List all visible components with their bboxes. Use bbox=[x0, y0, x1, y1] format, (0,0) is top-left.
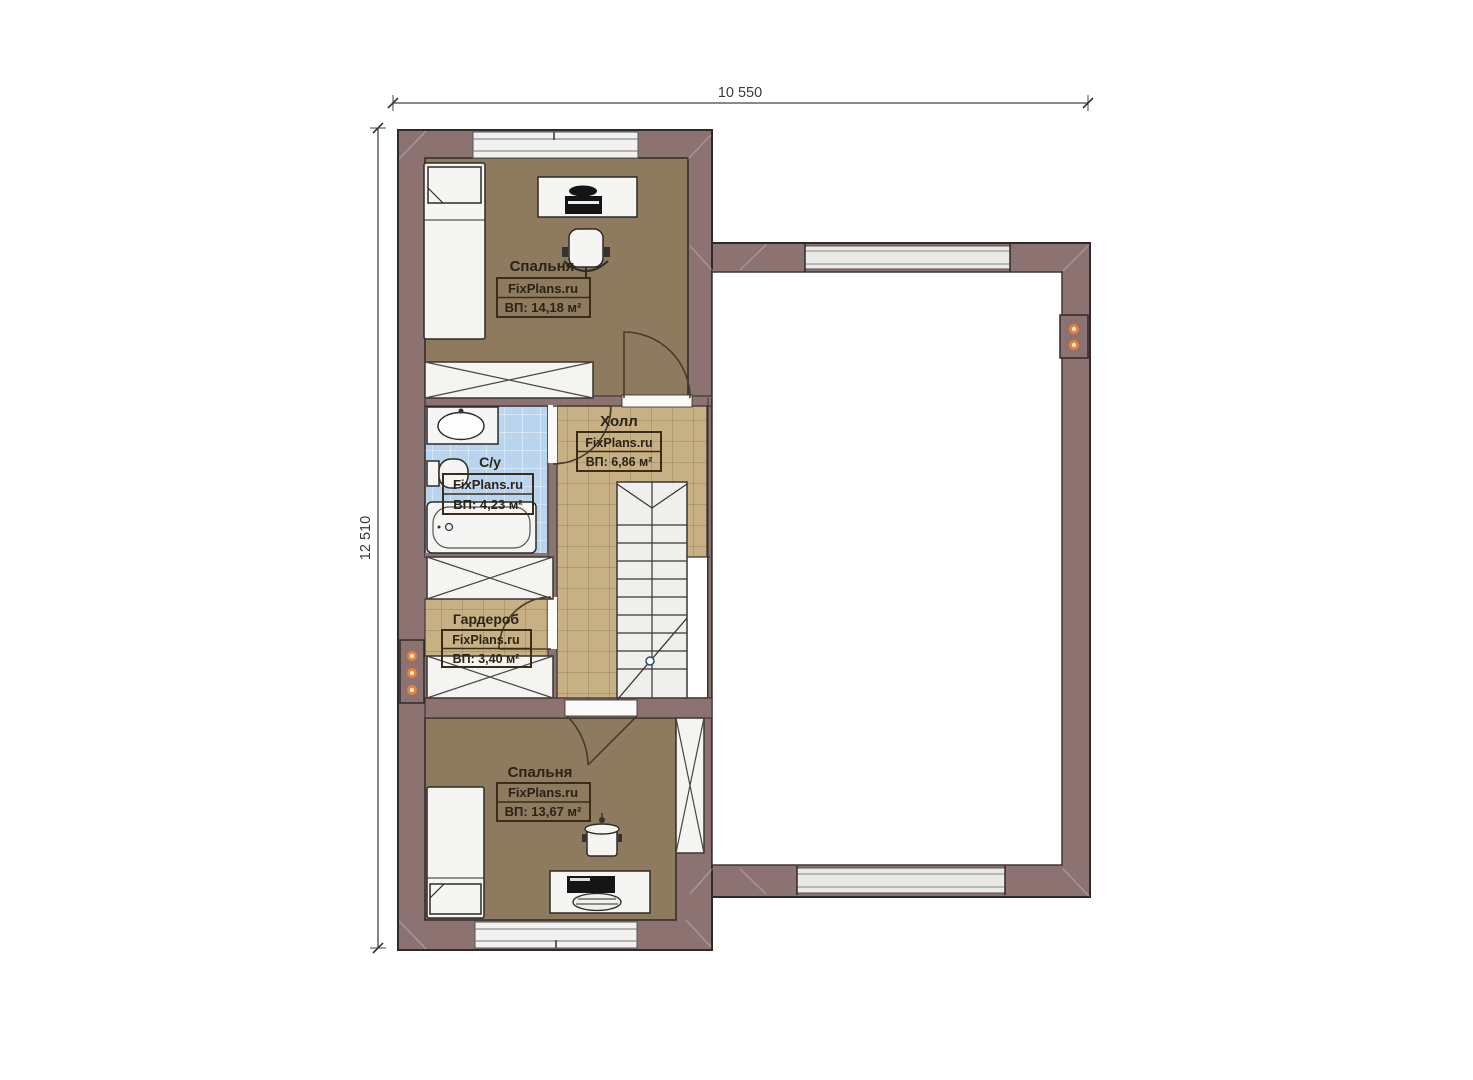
door-opening-wardrobe bbox=[548, 597, 557, 649]
desk-top bbox=[538, 177, 637, 217]
stair-break-marker bbox=[646, 657, 654, 665]
dimension-top: 10 550 bbox=[388, 85, 1093, 111]
floor-plan: 10 550 12 510 bbox=[0, 0, 1473, 1080]
window-bedroom-top bbox=[473, 132, 638, 158]
room-name-bedroom-top: Спальня bbox=[510, 258, 575, 275]
door-opening-bedroom-top bbox=[622, 395, 692, 407]
open-room-floor bbox=[712, 272, 1062, 865]
window-open-room-top bbox=[805, 243, 1010, 272]
room-name-bathroom: С/у bbox=[479, 454, 501, 470]
room-name-hall: Холл bbox=[600, 413, 638, 430]
door-opening-bathroom bbox=[548, 405, 557, 463]
label-wardrobe: Гардероб FixPlans.ru ВП: 3,40 м² bbox=[442, 611, 531, 667]
room-area-bedroom-bottom: ВП: 13,67 м² bbox=[505, 804, 582, 819]
window-bedroom-bottom bbox=[475, 922, 637, 948]
door-opening-bedroom-bottom bbox=[565, 700, 637, 716]
window-open-room-bottom bbox=[797, 866, 1005, 895]
watermark: FixPlans.ru bbox=[508, 785, 578, 800]
dimension-left: 12 510 bbox=[358, 123, 386, 953]
vent-block-right bbox=[1060, 315, 1088, 358]
room-area-bedroom-top: ВП: 14,18 м² bbox=[505, 300, 582, 315]
room-name-bedroom-bottom: Спальня bbox=[508, 764, 573, 781]
sink bbox=[427, 407, 498, 444]
watermark: FixPlans.ru bbox=[453, 477, 523, 492]
watermark: FixPlans.ru bbox=[452, 633, 519, 647]
vent-block-left bbox=[400, 640, 424, 703]
floor-plan-page: 10 550 12 510 bbox=[0, 0, 1473, 1080]
dimension-width-label: 10 550 bbox=[718, 85, 762, 101]
bed-bottom bbox=[427, 787, 484, 918]
room-area-hall: ВП: 6,86 м² bbox=[586, 455, 653, 469]
room-area-wardrobe: ВП: 3,40 м² bbox=[453, 652, 520, 666]
closet-bedroom-top bbox=[425, 362, 593, 398]
closet-above-wardrobe bbox=[427, 557, 553, 599]
room-area-bathroom: ВП: 4,23 м² bbox=[453, 497, 523, 512]
dimension-height-label: 12 510 bbox=[358, 516, 374, 560]
closet-bedroom-bottom bbox=[676, 718, 704, 853]
staircase bbox=[617, 482, 687, 700]
wardrobe-floor bbox=[425, 599, 548, 656]
room-name-wardrobe: Гардероб bbox=[453, 611, 520, 627]
watermark: FixPlans.ru bbox=[508, 281, 578, 296]
watermark: FixPlans.ru bbox=[585, 436, 652, 450]
stair-void bbox=[687, 557, 707, 697]
bed-top bbox=[424, 163, 485, 339]
desk-bottom bbox=[550, 871, 650, 913]
